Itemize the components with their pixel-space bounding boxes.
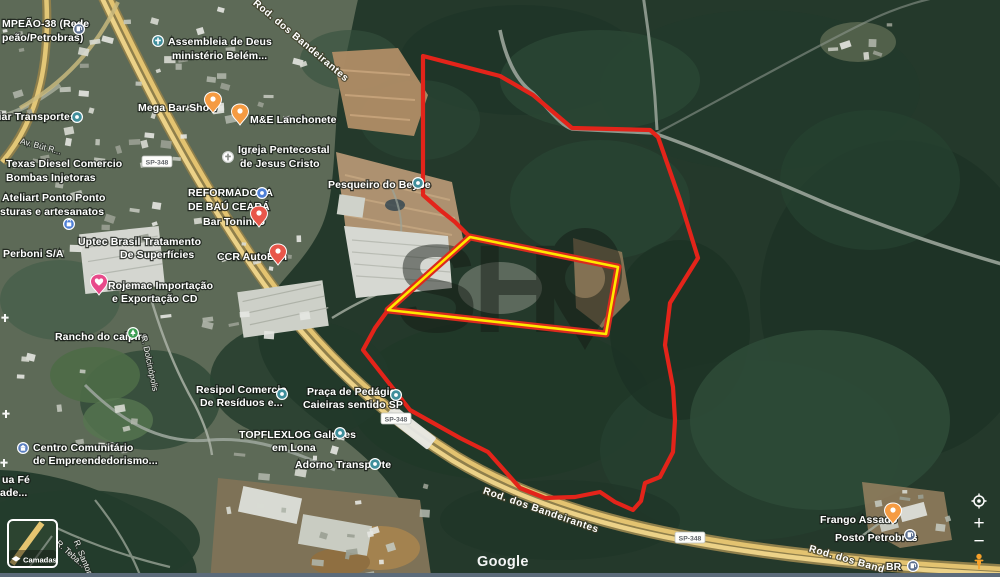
dot-teal-marker[interactable] <box>277 389 288 400</box>
dot-teal-marker[interactable] <box>72 112 83 123</box>
poi-label[interactable]: Uptec Brasil Tratamento <box>78 236 201 248</box>
map-viewport[interactable]: SH SP-348SP-348SP-348 MPEÃO-38 (Redepeão… <box>0 0 1000 577</box>
poi-label[interactable]: Igreja Pentecostal <box>238 144 330 156</box>
church-teal-marker[interactable] <box>153 36 164 47</box>
poi-label[interactable]: Frango Assado <box>820 514 897 526</box>
poi-label[interactable]: Bombas Injetoras <box>6 172 96 184</box>
road-shield: SP-348 <box>675 532 705 543</box>
poi-label[interactable]: Caieiras sentido SP <box>303 399 403 411</box>
gas-marker[interactable] <box>74 24 85 35</box>
poi-label[interactable]: uiar Transportes <box>0 111 76 123</box>
poi-label[interactable]: ua Fé <box>2 474 30 486</box>
poi-label[interactable]: e Exportação CD <box>112 293 198 305</box>
gas-marker[interactable] <box>905 530 916 541</box>
poi-label[interactable]: Centro Comunitário <box>33 442 133 454</box>
zoom-out-button[interactable]: − <box>973 531 984 552</box>
svg-text:SP-348: SP-348 <box>679 536 702 543</box>
map-canvas[interactable]: SH SP-348SP-348SP-348 MPEÃO-38 (Redepeão… <box>0 0 1000 577</box>
poi-label[interactable]: de Jesus Cristo <box>240 158 320 170</box>
svg-text:SP-348: SP-348 <box>146 160 169 167</box>
poi-label[interactable]: Resipol Comercio <box>196 384 287 396</box>
shop-blue-marker[interactable] <box>64 219 75 230</box>
dot-teal-marker[interactable] <box>335 428 346 439</box>
poi-label[interactable]: De Resíduos e... <box>200 397 283 409</box>
poi-label[interactable]: BR <box>886 561 902 573</box>
poi-label[interactable]: ministério Belém... <box>172 50 267 62</box>
dot-teal-marker[interactable] <box>391 390 402 401</box>
gas-marker[interactable] <box>908 561 919 572</box>
poi-label[interactable]: Praça de Pedágio <box>307 386 396 398</box>
poi-label[interactable]: ade... <box>0 487 27 499</box>
poi-label[interactable]: sturas e artesanatos <box>0 206 104 218</box>
layers-label: Camadas <box>23 556 57 565</box>
road-shield: SP-348 <box>142 156 172 167</box>
dot-teal-marker[interactable] <box>370 459 381 470</box>
poi-label[interactable]: Assembleia de Deus <box>168 36 272 48</box>
poi-label[interactable]: Ateliart Ponto Ponto <box>2 192 106 204</box>
bottom-strip <box>0 573 1000 577</box>
poi-label[interactable]: M&E Lanchonete <box>250 114 337 126</box>
google-attribution: Google <box>477 554 529 570</box>
poi-label[interactable]: Rojemac Importação <box>108 280 213 292</box>
church-white-marker[interactable] <box>223 152 234 163</box>
svg-text:SP-348: SP-348 <box>385 417 408 424</box>
tree-green-marker[interactable] <box>128 328 139 339</box>
poi-label[interactable]: de Empreendedorismo... <box>33 455 158 467</box>
poi-label[interactable]: Perboni S/A <box>3 248 64 260</box>
bank-blue-marker[interactable] <box>18 443 29 454</box>
dot-blue-marker[interactable] <box>257 188 268 199</box>
poi-label[interactable]: De Superfícies <box>120 249 194 261</box>
road-shield: SP-348 <box>381 413 411 424</box>
poi-label[interactable]: peão/Petrobras) <box>2 32 83 44</box>
dot-teal-marker[interactable] <box>413 178 424 189</box>
poi-label[interactable]: em Lona <box>272 442 316 454</box>
layers-control[interactable]: Camadas <box>8 520 57 567</box>
poi-label[interactable]: Texas Diesel Comercio <box>6 158 122 170</box>
